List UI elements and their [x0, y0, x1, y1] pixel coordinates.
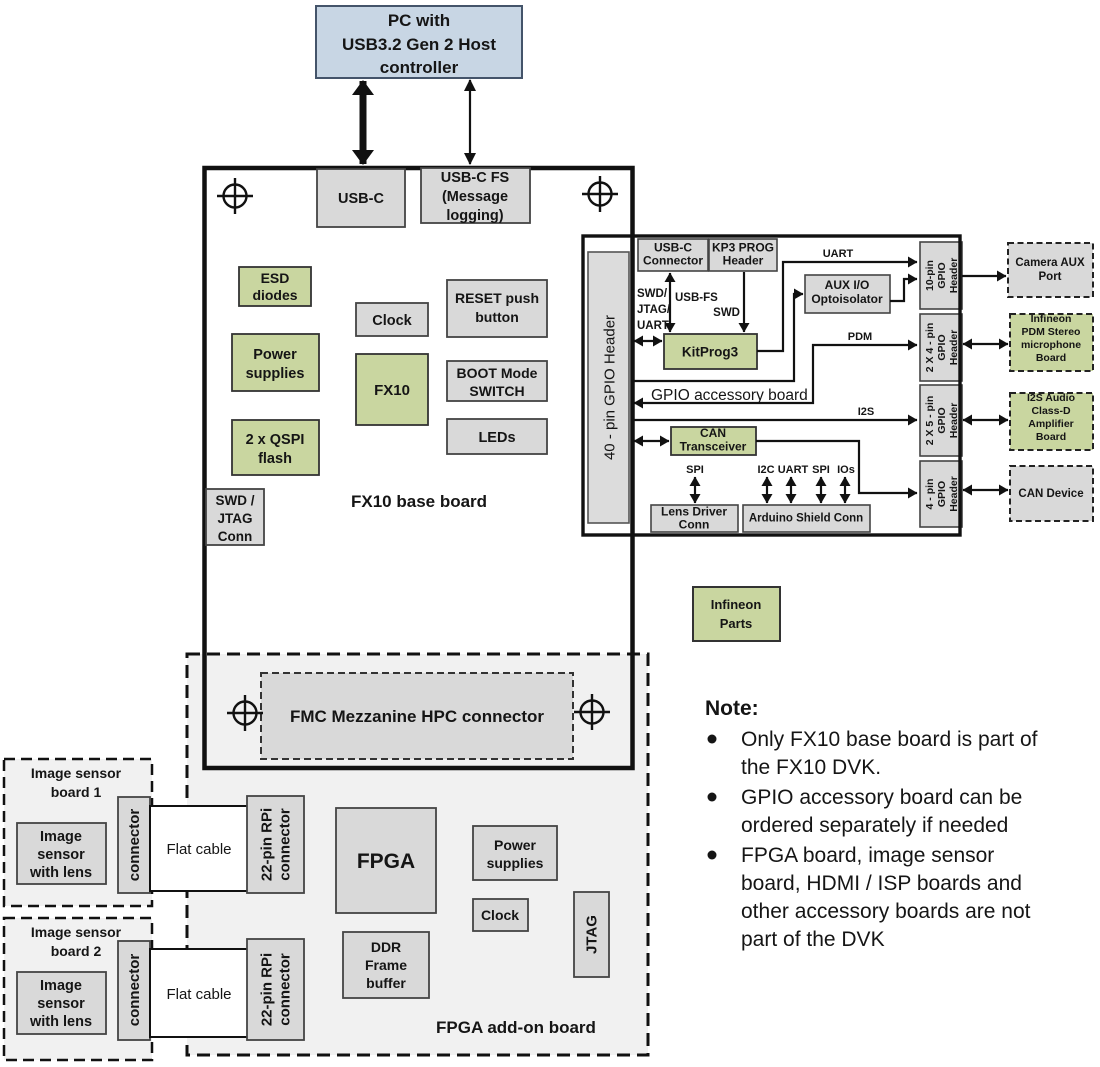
- svg-text:USB-C: USB-C: [338, 191, 384, 207]
- svg-text:part of the DVK: part of the DVK: [741, 928, 885, 951]
- svg-text:with lens: with lens: [29, 1014, 92, 1030]
- svg-text:ESD: ESD: [261, 270, 290, 286]
- svg-text:flash: flash: [258, 451, 292, 467]
- svg-text:ordered separately if needed: ordered separately if needed: [741, 814, 1008, 837]
- svg-text:Header: Header: [948, 476, 960, 512]
- svg-text:PDM Stereo: PDM Stereo: [1022, 326, 1081, 338]
- svg-text:Infineon: Infineon: [1031, 313, 1072, 325]
- svg-text:the FX10 DVK.: the FX10 DVK.: [741, 756, 881, 779]
- svg-text:Header: Header: [948, 330, 960, 366]
- svg-text:I2S Audio: I2S Audio: [1027, 392, 1075, 404]
- svg-text:Only FX10 base board is part o: Only FX10 base board is part of: [741, 728, 1038, 751]
- svg-text:2 X 5 - pin: 2 X 5 - pin: [924, 396, 936, 446]
- svg-text:I2S: I2S: [858, 406, 875, 418]
- svg-text:Arduino Shield Conn: Arduino Shield Conn: [749, 513, 863, 525]
- svg-text:Transceiver: Transceiver: [680, 440, 747, 454]
- svg-text:FPGA board, image sensor: FPGA board, image sensor: [741, 844, 994, 867]
- svg-text:BOOT Mode: BOOT Mode: [457, 365, 538, 381]
- svg-text:Infineon: Infineon: [711, 597, 762, 612]
- svg-text:with lens: with lens: [29, 865, 92, 881]
- svg-text:Image sensor: Image sensor: [31, 765, 122, 781]
- svg-text:Parts: Parts: [720, 616, 753, 631]
- svg-text:Conn: Conn: [679, 518, 710, 532]
- svg-text:10-pin: 10-pin: [924, 260, 936, 291]
- svg-text:Power: Power: [494, 837, 537, 853]
- svg-text:connector: connector: [126, 809, 143, 882]
- svg-text:KP3 PROG: KP3 PROG: [712, 241, 774, 255]
- svg-text:Image: Image: [40, 978, 82, 994]
- svg-text:Connector: Connector: [643, 254, 703, 268]
- svg-text:GPIO: GPIO: [936, 481, 948, 507]
- svg-text:Lens Driver: Lens Driver: [661, 505, 727, 519]
- svg-text:Clock: Clock: [481, 907, 519, 923]
- svg-text:SWD: SWD: [713, 307, 740, 319]
- svg-text:sensor: sensor: [37, 996, 85, 1012]
- svg-text:USB-C FS: USB-C FS: [441, 170, 510, 186]
- svg-text:FX10: FX10: [374, 382, 410, 399]
- svg-text:Port: Port: [1039, 271, 1062, 283]
- svg-text:40 - pin GPIO Header: 40 - pin GPIO Header: [602, 315, 619, 460]
- svg-text:PDM: PDM: [848, 331, 872, 343]
- svg-text:GPIO accessory board can be: GPIO accessory board can be: [741, 786, 1022, 809]
- svg-text:PC with: PC with: [388, 11, 450, 30]
- svg-text:SWD/: SWD/: [637, 288, 668, 300]
- svg-text:button: button: [475, 309, 519, 325]
- svg-text:SPI: SPI: [686, 464, 704, 476]
- svg-text:USB-C: USB-C: [654, 241, 692, 255]
- svg-text:supplies: supplies: [487, 855, 544, 871]
- svg-text:GPIO: GPIO: [936, 407, 948, 433]
- svg-text:AUX I/O: AUX I/O: [825, 278, 870, 292]
- svg-text:GPIO: GPIO: [936, 262, 948, 288]
- svg-text:22-pin RPi: 22-pin RPi: [259, 808, 276, 881]
- svg-text:Flat cable: Flat cable: [166, 986, 231, 1003]
- svg-text:Camera AUX: Camera AUX: [1015, 257, 1085, 269]
- svg-text:2 X 4 - pin: 2 X 4 - pin: [924, 323, 936, 373]
- svg-text:JTAG: JTAG: [217, 511, 252, 526]
- svg-text:Image sensor: Image sensor: [31, 924, 122, 940]
- svg-text:FMC Mezzanine HPC connector: FMC Mezzanine HPC connector: [290, 707, 544, 726]
- svg-text:FX10 base board: FX10 base board: [351, 492, 487, 511]
- svg-text:Note:: Note:: [705, 697, 759, 720]
- svg-text:connector: connector: [277, 808, 294, 881]
- svg-text:FPGA add-on board: FPGA add-on board: [436, 1018, 596, 1037]
- svg-text:UART: UART: [637, 320, 669, 332]
- svg-text:IOs: IOs: [837, 464, 855, 476]
- svg-text:Conn: Conn: [218, 529, 253, 544]
- svg-text:Power: Power: [253, 347, 297, 363]
- svg-text:(Message: (Message: [442, 189, 508, 205]
- svg-text:SWD /: SWD /: [216, 493, 255, 508]
- svg-text:Frame: Frame: [365, 957, 407, 973]
- svg-text:I2C: I2C: [757, 464, 774, 476]
- svg-text:Optoisolator: Optoisolator: [811, 292, 883, 306]
- svg-text:board, HDMI / ISP boards and: board, HDMI / ISP boards and: [741, 872, 1022, 895]
- svg-text:sensor: sensor: [37, 847, 85, 863]
- svg-text:Header: Header: [948, 258, 960, 294]
- svg-text:CAN Device: CAN Device: [1018, 488, 1083, 500]
- svg-text:JTAG/: JTAG/: [637, 304, 671, 316]
- svg-text:UART: UART: [823, 248, 854, 260]
- svg-text:Image: Image: [40, 829, 82, 845]
- svg-text:4 - pin: 4 - pin: [924, 479, 936, 510]
- svg-text:GPIO: GPIO: [936, 334, 948, 360]
- svg-text:board 1: board 1: [51, 784, 102, 800]
- svg-text:SWITCH: SWITCH: [469, 383, 524, 399]
- svg-text:RESET push: RESET push: [455, 290, 539, 306]
- svg-text:2 x QSPI: 2 x QSPI: [246, 432, 305, 448]
- svg-text:connector: connector: [277, 953, 294, 1026]
- svg-text:Class-D: Class-D: [1031, 405, 1071, 417]
- svg-text:USB-FS: USB-FS: [675, 292, 718, 304]
- svg-text:controller: controller: [380, 58, 459, 77]
- svg-text:board 2: board 2: [51, 943, 102, 959]
- svg-text:connector: connector: [126, 954, 143, 1027]
- svg-text:USB3.2 Gen 2 Host: USB3.2 Gen 2 Host: [342, 35, 496, 54]
- svg-text:UART: UART: [778, 464, 809, 476]
- svg-text:22-pin RPi: 22-pin RPi: [259, 953, 276, 1026]
- svg-text:microphone: microphone: [1021, 339, 1081, 351]
- svg-text:logging): logging): [446, 208, 503, 224]
- svg-text:FPGA: FPGA: [357, 850, 415, 873]
- svg-text:supplies: supplies: [246, 366, 305, 382]
- svg-text:CAN: CAN: [700, 426, 726, 440]
- svg-text:Flat cable: Flat cable: [166, 841, 231, 858]
- svg-text:Header: Header: [723, 254, 764, 268]
- svg-text:GPIO accessory board: GPIO accessory board: [651, 387, 808, 404]
- svg-text:DDR: DDR: [371, 939, 401, 955]
- svg-text:Board: Board: [1036, 431, 1066, 443]
- svg-text:Header: Header: [948, 403, 960, 439]
- svg-text:SPI: SPI: [812, 464, 830, 476]
- svg-text:Clock: Clock: [372, 313, 412, 329]
- svg-text:Amplifier: Amplifier: [1028, 418, 1074, 430]
- svg-text:LEDs: LEDs: [478, 430, 515, 446]
- svg-text:buffer: buffer: [366, 975, 406, 991]
- svg-text:KitProg3: KitProg3: [682, 345, 739, 360]
- svg-text:JTAG: JTAG: [584, 915, 601, 954]
- svg-text:Board: Board: [1036, 352, 1066, 364]
- svg-text:other accessory boards are not: other accessory boards are not: [741, 900, 1031, 923]
- svg-text:diodes: diodes: [252, 287, 297, 303]
